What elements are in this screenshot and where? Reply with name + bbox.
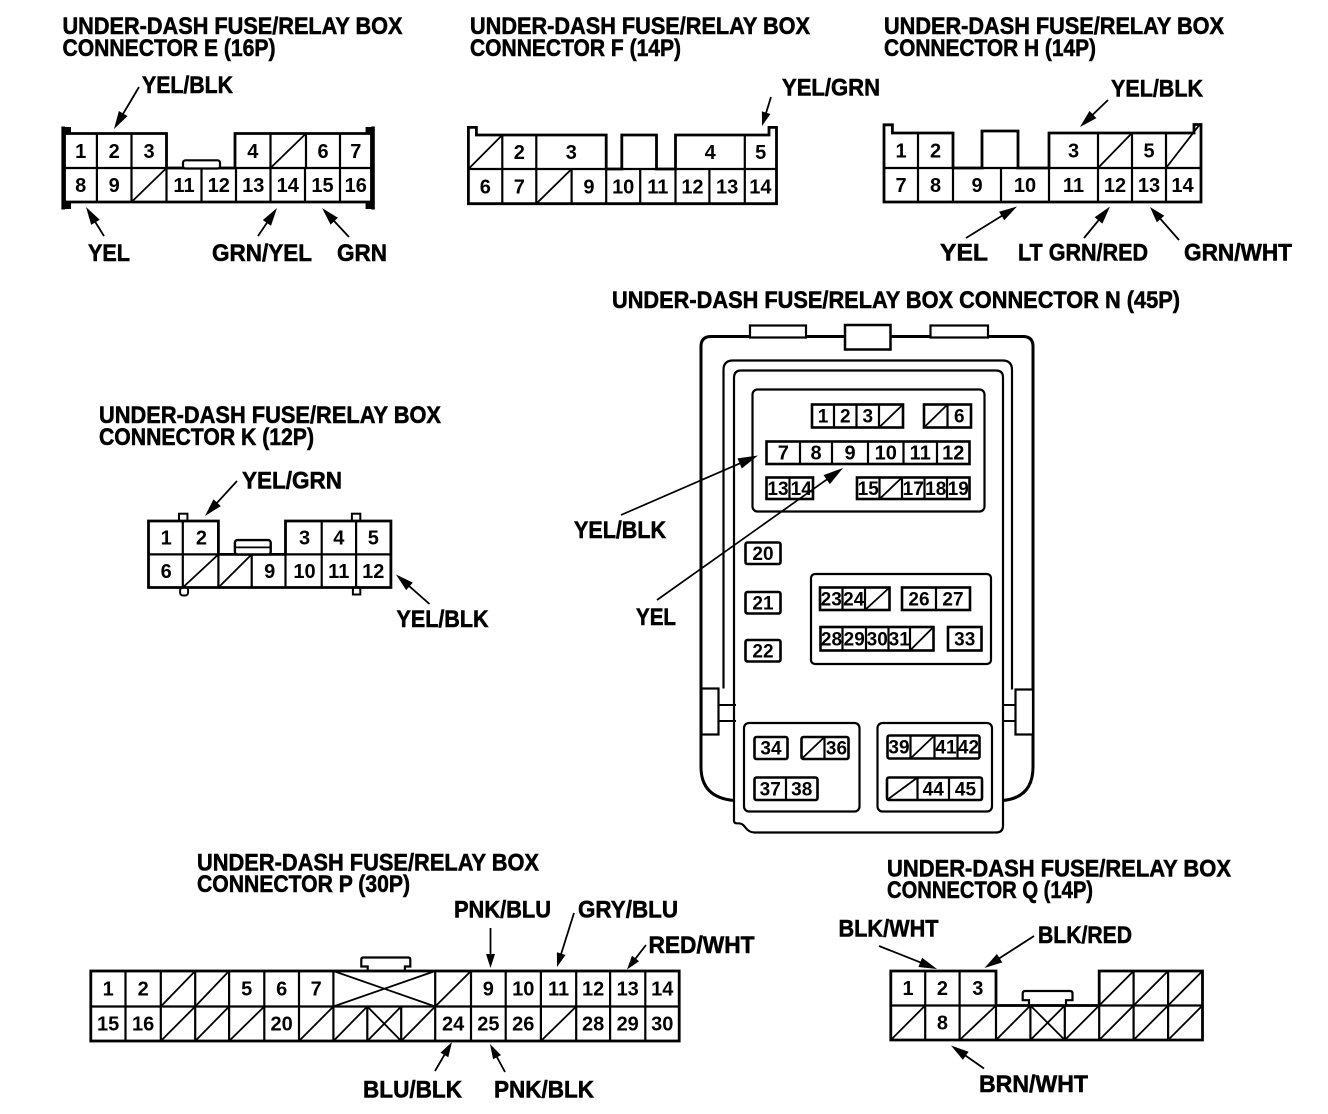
- svg-text:44: 44: [923, 779, 945, 800]
- svg-text:YEL/BLK: YEL/BLK: [1111, 76, 1204, 103]
- svg-text:26: 26: [512, 1014, 534, 1036]
- svg-text:13: 13: [242, 175, 264, 197]
- svg-text:9: 9: [583, 176, 594, 198]
- svg-text:5: 5: [241, 979, 252, 1001]
- svg-text:37: 37: [760, 779, 781, 800]
- svg-text:12: 12: [681, 176, 703, 198]
- svg-text:YEL: YEL: [940, 240, 988, 267]
- svg-text:19: 19: [948, 479, 969, 500]
- svg-text:GRN/YEL: GRN/YEL: [212, 240, 312, 267]
- svg-text:11: 11: [548, 979, 569, 1001]
- svg-text:2: 2: [937, 978, 948, 1000]
- svg-text:6: 6: [276, 979, 287, 1001]
- svg-text:24: 24: [442, 1014, 465, 1036]
- svg-text:GRN: GRN: [337, 240, 387, 267]
- svg-text:9: 9: [109, 175, 120, 197]
- svg-text:1: 1: [161, 528, 172, 550]
- svg-text:14: 14: [651, 979, 674, 1001]
- svg-text:11: 11: [910, 443, 931, 465]
- svg-text:6: 6: [317, 141, 328, 163]
- svg-text:2: 2: [196, 528, 207, 550]
- svg-text:16: 16: [345, 175, 367, 197]
- svg-text:33: 33: [954, 629, 975, 650]
- svg-text:29: 29: [844, 629, 865, 650]
- svg-text:YEL: YEL: [636, 604, 676, 631]
- svg-text:15: 15: [858, 479, 880, 500]
- svg-text:2: 2: [514, 142, 525, 164]
- svg-text:10: 10: [512, 979, 534, 1001]
- svg-text:GRN/WHT: GRN/WHT: [1184, 240, 1292, 267]
- svg-text:8: 8: [75, 175, 86, 197]
- svg-text:1: 1: [895, 140, 906, 162]
- svg-text:9: 9: [844, 443, 855, 465]
- svg-text:CONNECTOR E (16P): CONNECTOR E (16P): [63, 35, 276, 62]
- svg-text:YEL/BLK: YEL/BLK: [142, 72, 234, 99]
- svg-text:11: 11: [1063, 175, 1084, 197]
- svg-text:YEL/BLK: YEL/BLK: [397, 606, 490, 633]
- svg-text:38: 38: [791, 779, 812, 800]
- svg-text:17: 17: [903, 479, 924, 500]
- svg-text:6: 6: [161, 561, 172, 583]
- svg-text:30: 30: [651, 1014, 673, 1036]
- svg-text:14: 14: [749, 176, 772, 198]
- svg-text:10: 10: [1014, 175, 1036, 197]
- svg-text:GRY/BLU: GRY/BLU: [578, 897, 678, 924]
- svg-text:11: 11: [647, 176, 668, 198]
- svg-text:15: 15: [97, 1014, 119, 1036]
- svg-text:28: 28: [582, 1014, 604, 1036]
- svg-text:12: 12: [1104, 175, 1126, 197]
- svg-text:20: 20: [271, 1014, 293, 1036]
- svg-text:5: 5: [368, 528, 379, 550]
- svg-text:13: 13: [716, 176, 738, 198]
- svg-text:13: 13: [767, 479, 788, 500]
- svg-text:RED/WHT: RED/WHT: [649, 932, 755, 959]
- svg-text:CONNECTOR P (30P): CONNECTOR P (30P): [197, 871, 410, 898]
- svg-text:25: 25: [477, 1014, 499, 1036]
- svg-text:BLK/WHT: BLK/WHT: [839, 916, 939, 943]
- svg-text:34: 34: [760, 739, 782, 760]
- svg-text:3: 3: [299, 528, 310, 550]
- svg-text:36: 36: [826, 739, 847, 760]
- svg-text:PNK/BLK: PNK/BLK: [494, 1077, 595, 1104]
- svg-text:2: 2: [840, 407, 851, 428]
- svg-text:3: 3: [143, 141, 154, 163]
- svg-text:45: 45: [955, 779, 977, 800]
- svg-text:27: 27: [942, 589, 963, 610]
- svg-text:28: 28: [821, 629, 842, 650]
- svg-text:26: 26: [908, 589, 929, 610]
- svg-text:15: 15: [311, 175, 333, 197]
- svg-text:13: 13: [617, 979, 639, 1001]
- svg-text:9: 9: [971, 175, 982, 197]
- svg-text:4: 4: [333, 528, 345, 550]
- svg-text:UNDER-DASH FUSE/RELAY BOX CONN: UNDER-DASH FUSE/RELAY BOX CONNECTOR N (4…: [612, 287, 1180, 314]
- svg-text:14: 14: [1171, 175, 1194, 197]
- svg-text:9: 9: [483, 979, 494, 1001]
- svg-text:1: 1: [818, 407, 829, 428]
- svg-text:18: 18: [925, 479, 946, 500]
- svg-text:24: 24: [843, 589, 865, 610]
- svg-text:10: 10: [293, 561, 315, 583]
- svg-text:3: 3: [1068, 140, 1079, 162]
- svg-text:22: 22: [752, 641, 773, 662]
- svg-text:8: 8: [930, 175, 941, 197]
- svg-text:12: 12: [208, 175, 230, 197]
- svg-text:4: 4: [705, 142, 717, 164]
- svg-text:29: 29: [617, 1014, 639, 1036]
- svg-text:1: 1: [75, 141, 86, 163]
- svg-text:7: 7: [350, 141, 361, 163]
- svg-text:31: 31: [889, 629, 911, 650]
- svg-text:11: 11: [328, 561, 349, 583]
- svg-text:30: 30: [867, 629, 888, 650]
- svg-text:42: 42: [958, 738, 979, 759]
- svg-text:2: 2: [930, 140, 941, 162]
- svg-text:2: 2: [109, 141, 120, 163]
- svg-text:7: 7: [778, 443, 789, 465]
- svg-text:PNK/BLU: PNK/BLU: [454, 897, 551, 924]
- svg-text:8: 8: [937, 1013, 948, 1035]
- svg-text:41: 41: [935, 738, 957, 759]
- svg-text:23: 23: [821, 589, 842, 610]
- svg-text:8: 8: [810, 443, 821, 465]
- svg-text:7: 7: [311, 979, 322, 1001]
- svg-text:BLU/BLK: BLU/BLK: [363, 1077, 463, 1104]
- svg-text:7: 7: [514, 176, 525, 198]
- svg-text:21: 21: [752, 593, 774, 614]
- svg-text:13: 13: [1138, 175, 1160, 197]
- svg-text:7: 7: [895, 175, 906, 197]
- svg-text:1: 1: [103, 979, 114, 1001]
- svg-text:14: 14: [277, 175, 300, 197]
- svg-text:6: 6: [480, 176, 491, 198]
- svg-text:YEL/GRN: YEL/GRN: [782, 75, 880, 102]
- svg-text:11: 11: [173, 175, 194, 197]
- svg-text:YEL/BLK: YEL/BLK: [574, 517, 667, 544]
- svg-text:CONNECTOR K (12P): CONNECTOR K (12P): [99, 424, 314, 451]
- svg-text:CONNECTOR Q (14P): CONNECTOR Q (14P): [887, 877, 1093, 904]
- svg-text:10: 10: [875, 443, 897, 465]
- svg-text:3: 3: [862, 407, 873, 428]
- svg-text:2: 2: [138, 979, 149, 1001]
- svg-text:12: 12: [942, 443, 964, 465]
- svg-text:LT GRN/RED: LT GRN/RED: [1018, 240, 1148, 267]
- svg-text:6: 6: [954, 407, 965, 428]
- svg-text:CONNECTOR H (14P): CONNECTOR H (14P): [884, 35, 1096, 62]
- svg-text:9: 9: [264, 561, 275, 583]
- svg-text:BRN/WHT: BRN/WHT: [979, 1071, 1088, 1098]
- svg-text:1: 1: [902, 978, 913, 1000]
- svg-text:CONNECTOR F (14P): CONNECTOR F (14P): [470, 35, 681, 62]
- svg-text:12: 12: [582, 979, 604, 1001]
- svg-text:39: 39: [888, 738, 909, 759]
- svg-text:YEL/GRN: YEL/GRN: [242, 468, 342, 495]
- svg-text:3: 3: [972, 978, 983, 1000]
- svg-text:10: 10: [612, 176, 634, 198]
- svg-text:BLK/RED: BLK/RED: [1038, 922, 1132, 949]
- svg-text:5: 5: [755, 142, 766, 164]
- svg-text:12: 12: [362, 561, 384, 583]
- svg-text:4: 4: [247, 141, 259, 163]
- svg-text:16: 16: [132, 1014, 154, 1036]
- svg-text:5: 5: [1143, 140, 1154, 162]
- svg-text:YEL: YEL: [88, 240, 130, 267]
- svg-text:3: 3: [566, 142, 577, 164]
- svg-text:20: 20: [752, 544, 773, 565]
